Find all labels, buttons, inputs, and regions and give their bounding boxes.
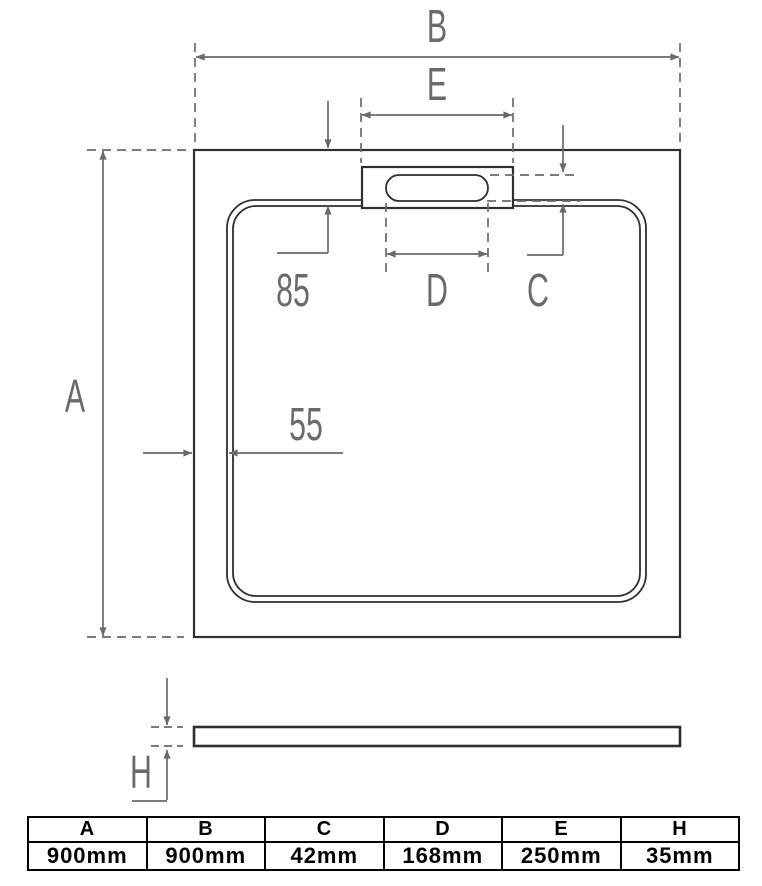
table-value-A: 900mm <box>28 842 147 870</box>
table-value-H: 35mm <box>621 842 740 870</box>
dim-label-A: A <box>65 372 85 423</box>
table-value-C: 42mm <box>265 842 384 870</box>
dimension-55: 55 <box>143 400 343 453</box>
table-header-B: B <box>147 817 266 842</box>
dim-label-H: H <box>130 748 152 799</box>
dim-label-85: 85 <box>276 266 310 317</box>
tray-outer-edge <box>194 150 680 637</box>
table-header-D: D <box>384 817 503 842</box>
table-header-H: H <box>621 817 740 842</box>
dimension-E: E <box>361 60 513 163</box>
dimension-85: 85 <box>276 101 328 317</box>
shower-tray-dimension-diagram: B E 85 D C <box>0 0 762 886</box>
plan-view <box>194 150 680 637</box>
dimension-A: A <box>65 150 190 637</box>
dim-label-C: C <box>527 266 549 317</box>
dimension-D: D <box>386 203 488 317</box>
dim-label-B: B <box>427 2 447 53</box>
table-value-D: 168mm <box>384 842 503 870</box>
table-header-E: E <box>502 817 621 842</box>
dim-label-55: 55 <box>289 400 323 451</box>
table-header-A: A <box>28 817 147 842</box>
waste-slot <box>386 175 488 201</box>
dim-label-D: D <box>426 266 448 317</box>
table-header-C: C <box>265 817 384 842</box>
dimension-H: H <box>130 678 183 801</box>
table-header-row: A B C D E H <box>28 817 739 842</box>
table-value-row: 900mm 900mm 42mm 168mm 250mm 35mm <box>28 842 739 870</box>
dimension-C: C <box>487 125 580 317</box>
dimension-table: A B C D E H 900mm 900mm 42mm 168mm 250mm… <box>27 816 740 871</box>
technical-drawing: B E 85 D C <box>0 0 762 812</box>
side-view <box>194 727 680 746</box>
table-value-B: 900mm <box>147 842 266 870</box>
dim-label-E: E <box>427 60 447 111</box>
table-value-E: 250mm <box>502 842 621 870</box>
tray-profile <box>194 727 680 746</box>
